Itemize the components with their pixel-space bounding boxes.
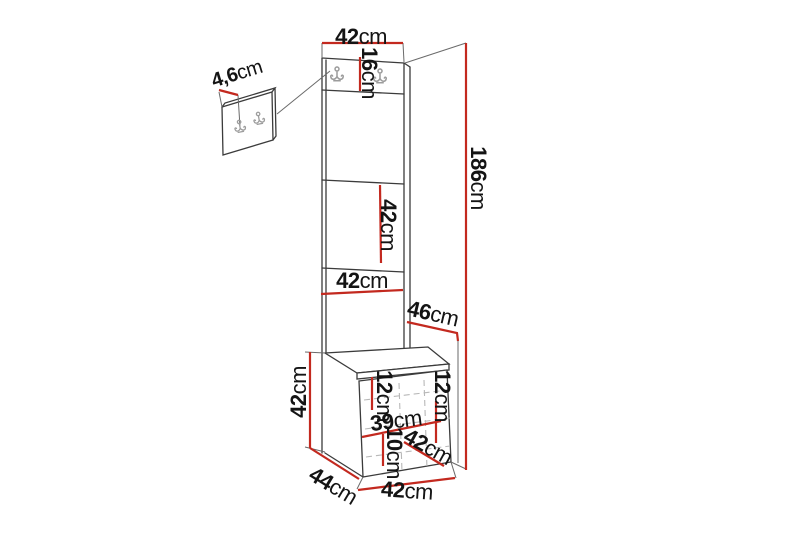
- dim-value: 186: [466, 146, 491, 181]
- dim-unit: cm: [404, 478, 434, 505]
- dim-label-panel-top-width: 42cm: [335, 26, 387, 48]
- dim-unit: cm: [359, 24, 387, 49]
- dim-value: 12: [372, 370, 397, 393]
- dim-value: 42: [380, 476, 405, 503]
- dim-unit: cm: [466, 181, 491, 209]
- dim-line-wall-panel-hook-width: [219, 90, 238, 95]
- dim-label-panel-section-height: 42cm: [377, 199, 399, 251]
- furniture-dimension-diagram: 42cm 16cm 186cm 42cm 42cm 46cm 4,6cm 42c…: [0, 0, 800, 533]
- dim-unit: cm: [382, 451, 407, 479]
- dim-label-total-height: 186cm: [467, 146, 489, 210]
- dim-label-hook-rail-height: 16cm: [358, 47, 380, 99]
- dim-value: 12: [430, 370, 455, 393]
- dim-label-bench-height: 42cm: [288, 366, 310, 418]
- dim-unit: cm: [286, 366, 311, 394]
- dim-unit: cm: [430, 394, 455, 422]
- dim-unit: cm: [360, 268, 388, 293]
- dim-unit: cm: [357, 71, 382, 99]
- dim-value: 16: [357, 47, 382, 70]
- dim-unit: cm: [376, 223, 401, 251]
- dim-value: 42: [286, 394, 311, 417]
- coat-hook-icon: [331, 67, 343, 81]
- dim-label-bench-width: 42cm: [380, 478, 433, 504]
- hook-panel-outline: [222, 88, 276, 155]
- dim-label-bench-lower-height: 10cm: [383, 427, 405, 479]
- dim-label-panel-lower-width: 42cm: [336, 270, 388, 292]
- dim-value: 42: [335, 24, 358, 49]
- dim-label-bench-upper-right-height: 12cm: [431, 370, 453, 422]
- dim-value: 42: [376, 199, 401, 222]
- dim-value: 42: [336, 268, 359, 293]
